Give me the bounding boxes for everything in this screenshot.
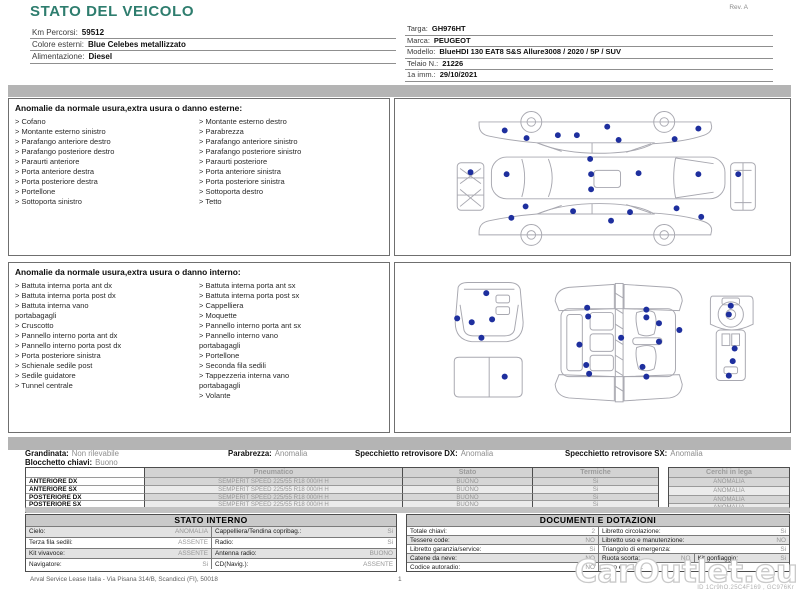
field-label: Colore esterni: xyxy=(32,39,84,50)
cell-value: NO xyxy=(585,537,595,544)
cell-label: Cielo: xyxy=(29,528,45,535)
damage-marker xyxy=(695,171,701,177)
internal-anomaly-column-2: > Battuta interna porta ant sx> Battuta … xyxy=(199,281,383,401)
anomaly-item: > Seconda fila sedili xyxy=(199,361,383,371)
damage-marker xyxy=(608,218,614,224)
field-label: Km Percorsi: xyxy=(32,27,78,38)
anomaly-item: > Schienale sedile post xyxy=(15,361,199,371)
field-value: Blue Celebes metallizzato xyxy=(88,39,186,50)
header-field-row: Telaio N.:21226 xyxy=(405,59,773,71)
anomaly-item: > Tappezzeria interna vano portabagagli xyxy=(199,371,383,391)
anomaly-label: Volante xyxy=(205,391,230,400)
internal-anomaly-title: Anomalie da normale usura,extra usura o … xyxy=(15,267,383,277)
table-cell: CD(Navig.):ASSENTE xyxy=(211,559,396,569)
damage-marker xyxy=(508,215,514,221)
anomaly-item: > Portellone xyxy=(15,187,199,197)
cell-value: Si xyxy=(589,546,595,553)
field-label: Targa: xyxy=(407,24,428,35)
anomaly-item: > Montante esterno sinistro xyxy=(15,127,199,137)
anomaly-label: Moquette xyxy=(205,311,236,320)
anomaly-label: Pannello interno porta post dx xyxy=(21,341,121,350)
table-cell: Kit vivavoce:ASSENTE xyxy=(26,549,211,559)
anomaly-label: Sedile guidatore xyxy=(21,371,75,380)
anomaly-item: > Tetto xyxy=(199,197,383,207)
cell-value: ASSENTE xyxy=(363,561,393,568)
table-cell: Libretto garanzia/service:Si xyxy=(407,545,598,553)
damage-marker xyxy=(671,136,677,142)
summary-item: Blocchetto chiavi:Buono xyxy=(25,459,118,468)
damage-marker xyxy=(695,126,701,132)
anomaly-label: Porta posteriore sinistra xyxy=(21,351,100,360)
damage-marker xyxy=(588,186,594,192)
section-external-anomalies: Anomalie da normale usura,extra usura o … xyxy=(8,98,791,256)
damage-marker xyxy=(554,132,560,138)
damage-marker xyxy=(478,335,484,341)
damage-marker xyxy=(676,327,682,333)
anomaly-label: Montante esterno sinistro xyxy=(21,127,105,136)
table-cell: Codice autoradio:NO xyxy=(407,563,598,571)
cell-label: Antenna radio: xyxy=(215,550,257,557)
table-cell: Tessere code:NO xyxy=(407,536,598,544)
anomaly-label: Pannello interno vano portabagagli xyxy=(199,331,278,350)
anomaly-item: > Parafango posteriore destro xyxy=(15,147,199,157)
anomaly-item: > Tunnel centrale xyxy=(15,381,199,391)
table-cell: Catene da neve:NO xyxy=(407,554,598,562)
anomaly-item: > Parafango anteriore sinistro xyxy=(199,137,383,147)
anomaly-label: Porta posteriore destra xyxy=(21,177,97,186)
cell-label: Kit vivavoce: xyxy=(29,550,65,557)
anomaly-label: Battuta interna porta ant dx xyxy=(21,281,111,290)
header-field-row: Colore esterni:Blue Celebes metallizzato xyxy=(30,39,396,51)
anomaly-label: Battuta interna porta post sx xyxy=(205,291,299,300)
cell-label: Libretto uso e manutenzione: xyxy=(602,537,684,544)
cell-value: Si xyxy=(780,528,786,535)
cell-value: ASSENTE xyxy=(178,550,208,557)
anomaly-label: Portellone xyxy=(21,187,55,196)
anomaly-item: > Sedile guidatore xyxy=(15,371,199,381)
header-field-row: Targa:GH976HT xyxy=(405,24,773,36)
damage-marker xyxy=(627,209,633,215)
tyre-condition: BUONO xyxy=(402,493,532,501)
damage-marker xyxy=(583,362,589,368)
external-anomaly-title: Anomalie da normale usura,extra usura o … xyxy=(15,103,383,113)
damage-marker xyxy=(618,335,624,341)
anomaly-item: > Battuta interna vano portabagagli xyxy=(15,301,199,321)
tyre-description: SEMPERIT SPEED 225/55 R18 000/H H xyxy=(144,493,402,501)
anomaly-item: > Porta posteriore sinistra xyxy=(15,351,199,361)
tyre-winter: Si xyxy=(532,477,658,485)
anomaly-label: Porta anteriore sinistra xyxy=(205,167,280,176)
summary-label: Specchietto retrovisore SX: xyxy=(565,449,667,458)
car-exterior-diagram xyxy=(399,102,787,252)
tyre-table-header: Pneumatico Stato Termiche xyxy=(26,468,658,477)
anomaly-item: > Battuta interna porta ant dx xyxy=(15,281,199,291)
tyre-header-blank xyxy=(26,468,144,477)
documenti-title: DOCUMENTI E DOTAZIONI xyxy=(407,515,789,526)
anomaly-item: > Sottoporta sinistro xyxy=(15,197,199,207)
anomaly-item: > Moquette xyxy=(199,311,383,321)
summary-label: Specchietto retrovisore DX: xyxy=(355,449,458,458)
anomaly-label: Pannello interno porta ant sx xyxy=(205,321,300,330)
anomaly-label: Parafango posteriore destro xyxy=(21,147,114,156)
car-interior-diagram xyxy=(399,266,787,429)
damage-marker xyxy=(604,124,610,130)
damage-marker xyxy=(643,374,649,380)
table-cell: Libretto circolazione:Si xyxy=(598,527,789,535)
tyre-row: ANTERIORE SXSEMPERIT SPEED 225/55 R18 00… xyxy=(26,485,658,493)
damage-marker xyxy=(454,315,460,321)
table-cell: Totale chiavi:2 xyxy=(407,527,598,535)
table-cell: Libretto uso e manutenzione:NO xyxy=(598,536,789,544)
damage-marker xyxy=(735,171,741,177)
anomaly-item: > Cappelliera xyxy=(199,301,383,311)
summary-line-1: Grandinata:Non rilevabileParabrezza:Anom… xyxy=(25,450,790,459)
field-label: Marca: xyxy=(407,36,430,47)
anomaly-item: > Paraurti anteriore xyxy=(15,157,199,167)
interior-damage-markers xyxy=(454,290,738,379)
anomaly-label: Parafango posteriore sinistro xyxy=(205,147,301,156)
summary-line-2: Blocchetto chiavi:Buono xyxy=(25,459,790,468)
alloy-wheel-condition: ANOMALIA xyxy=(669,486,789,495)
header-fields-right: Targa:GH976HTMarca:PEUGEOTModello:BlueHD… xyxy=(405,24,773,82)
anomaly-item: > Porta posteriore destra xyxy=(15,177,199,187)
damage-marker xyxy=(673,205,679,211)
table-row: Kit vivavoce:ASSENTEAntenna radio:BUONO xyxy=(26,548,396,559)
anomaly-item: > Pannello interno vano portabagagli xyxy=(199,331,383,351)
table-row: Cielo:ANOMALIACappelliera/Tendina coprib… xyxy=(26,526,396,537)
cell-value: 2 xyxy=(591,528,595,535)
cell-label: Triangolo di emergenza: xyxy=(602,546,671,553)
table-row: Terza fila sedili:ASSENTERadio:Si xyxy=(26,537,396,548)
tyre-position: POSTERIORE DX xyxy=(26,493,144,501)
cell-value: Si xyxy=(202,561,208,568)
field-label: Alimentazione: xyxy=(32,51,84,62)
field-value: 29/10/2021 xyxy=(440,70,478,81)
cell-label: Totale chiavi: xyxy=(410,528,447,535)
anomaly-item: > Battuta interna porta ant sx xyxy=(199,281,383,291)
stato-interno-table: STATO INTERNO Cielo:ANOMALIACappelliera/… xyxy=(25,514,397,572)
anomaly-item: > Battuta interna porta post dx xyxy=(15,291,199,301)
anomaly-label: Parafango anteriore destro xyxy=(21,137,110,146)
damage-marker xyxy=(467,169,473,175)
cell-label: Radio: xyxy=(215,539,233,546)
field-value: 21226 xyxy=(442,59,463,70)
damage-marker xyxy=(725,312,731,318)
anomaly-label: Battuta interna porta ant sx xyxy=(205,281,295,290)
anomaly-label: Battuta interna vano portabagagli xyxy=(15,301,89,320)
field-label: 1a imm.: xyxy=(407,70,436,81)
exterior-damage-markers xyxy=(467,124,741,224)
anomaly-label: Cappelliera xyxy=(205,301,243,310)
cell-label: Navigatore: xyxy=(29,561,62,568)
damage-marker xyxy=(643,307,649,313)
header-field-row: Km Percorsi:59512 xyxy=(30,27,396,39)
damage-marker xyxy=(635,170,641,176)
anomaly-item: > Porta anteriore sinistra xyxy=(199,167,383,177)
damage-marker xyxy=(698,214,704,220)
tyre-header-termiche: Termiche xyxy=(532,468,658,477)
damage-marker xyxy=(503,171,509,177)
tyre-position: ANTERIORE SX xyxy=(26,485,144,493)
table-row: Totale chiavi:2Libretto circolazione:Si xyxy=(407,526,789,535)
anomaly-label: Montante esterno destro xyxy=(205,117,286,126)
table-cell: Terza fila sedili:ASSENTE xyxy=(26,538,211,548)
damage-marker xyxy=(468,319,474,325)
anomaly-item: > Parabrezza xyxy=(199,127,383,137)
anomaly-item: > Porta anteriore destra xyxy=(15,167,199,177)
anomaly-label: Schienale sedile post xyxy=(21,361,92,370)
damage-marker xyxy=(655,320,661,326)
footer-page-number: 1 xyxy=(398,576,402,583)
interior-diagram-panel xyxy=(394,262,791,433)
cell-value: Si xyxy=(387,528,393,535)
external-anomaly-column-1: > Cofano> Montante esterno sinistro> Par… xyxy=(15,117,199,207)
summary-item: Parabrezza:Anomalia xyxy=(228,450,355,459)
damage-marker xyxy=(584,305,590,311)
field-label: Modello: xyxy=(407,47,435,58)
exterior-diagram-panel xyxy=(394,98,791,256)
page-title: STATO DEL VEICOLO xyxy=(30,3,194,20)
cell-value: ANOMALIA xyxy=(175,528,208,535)
anomaly-item: > Portellone xyxy=(199,351,383,361)
header-field-row: 1a imm.:29/10/2021 xyxy=(405,70,773,82)
alloy-wheel-condition: ANOMALIA xyxy=(669,495,789,504)
anomaly-label: Cruscotto xyxy=(21,321,53,330)
anomaly-item: > Parafango anteriore destro xyxy=(15,137,199,147)
damage-marker xyxy=(523,135,529,141)
internal-anomaly-list: Anomalie da normale usura,extra usura o … xyxy=(8,262,390,433)
summary-label: Grandinata: xyxy=(25,449,69,458)
anomaly-label: Tetto xyxy=(205,197,221,206)
damage-marker xyxy=(489,316,495,322)
anomaly-label: Sottoporta destro xyxy=(205,187,263,196)
footer-company: Arval Service Lease Italia - Via Pisana … xyxy=(30,576,218,583)
table-cell: Radio:Si xyxy=(211,538,396,548)
summary-value: Anomalia xyxy=(275,449,308,458)
cell-label: Terza fila sedili: xyxy=(29,539,73,546)
anomaly-item: > Cruscotto xyxy=(15,321,199,331)
anomaly-label: Porta posteriore sinistra xyxy=(205,177,284,186)
anomaly-label: Portellone xyxy=(205,351,239,360)
damage-marker xyxy=(483,290,489,296)
anomaly-label: Cofano xyxy=(21,117,45,126)
anomaly-item: > Parafango posteriore sinistro xyxy=(199,147,383,157)
anomaly-item: > Battuta interna porta post sx xyxy=(199,291,383,301)
damage-marker xyxy=(522,203,528,209)
anomaly-label: Parafango anteriore sinistro xyxy=(205,137,297,146)
anomaly-label: Tappezzeria interna vano portabagagli xyxy=(199,371,289,390)
tyre-description: SEMPERIT SPEED 225/55 R18 000/H H xyxy=(144,485,402,493)
summary-label: Blocchetto chiavi: xyxy=(25,458,92,467)
damage-marker xyxy=(655,339,661,345)
cell-value: Si xyxy=(387,539,393,546)
table-cell: Navigatore:Si xyxy=(26,559,211,569)
cell-label: Codice autoradio: xyxy=(410,564,460,571)
field-value: 59512 xyxy=(82,27,104,38)
anomaly-label: Parabrezza xyxy=(205,127,243,136)
summary-value: Buono xyxy=(95,458,118,467)
stato-interno-title: STATO INTERNO xyxy=(26,515,396,526)
anomaly-item: > Pannello interno porta post dx xyxy=(15,341,199,351)
external-anomaly-list: Anomalie da normale usura,extra usura o … xyxy=(8,98,390,256)
damage-marker xyxy=(615,137,621,143)
damage-marker xyxy=(731,345,737,351)
header-field-row: Marca:PEUGEOT xyxy=(405,36,773,48)
tyre-condition: BUONO xyxy=(402,485,532,493)
damage-marker xyxy=(570,208,576,214)
damage-marker xyxy=(576,342,582,348)
cell-value: BUONO xyxy=(370,550,393,557)
cell-label: CD(Navig.): xyxy=(215,561,248,568)
revision-label: Rev. A xyxy=(729,4,748,11)
alloy-wheel-condition: ANOMALIA xyxy=(669,477,789,486)
external-anomaly-column-2: > Montante esterno destro> Parabrezza> P… xyxy=(199,117,383,207)
damage-marker xyxy=(587,156,593,162)
summary-item: Specchietto retrovisore DX:Anomalia xyxy=(355,450,565,459)
section-internal-anomalies: Anomalie da normale usura,extra usura o … xyxy=(8,262,791,433)
damage-marker xyxy=(725,373,731,379)
table-cell: Cielo:ANOMALIA xyxy=(26,527,211,537)
anomaly-label: Pannello interno porta ant dx xyxy=(21,331,117,340)
anomaly-item: > Montante esterno destro xyxy=(199,117,383,127)
anomaly-item: > Pannello interno porta ant sx xyxy=(199,321,383,331)
cell-value: ASSENTE xyxy=(178,539,208,546)
anomaly-item: > Pannello interno porta ant dx xyxy=(15,331,199,341)
vehicle-report-page: STATO DEL VEICOLO Rev. A Km Percorsi:595… xyxy=(0,0,800,600)
anomaly-label: Battuta interna porta post dx xyxy=(21,291,115,300)
damage-marker xyxy=(639,364,645,370)
table-cell: Triangolo di emergenza:Si xyxy=(598,545,789,553)
field-label: Telaio N.: xyxy=(407,59,438,70)
field-value: PEUGEOT xyxy=(434,36,471,47)
damage-marker xyxy=(729,358,735,364)
tyre-header-cerchi: Cerchi in lega xyxy=(669,468,789,477)
table-row: Libretto garanzia/service:SiTriangolo di… xyxy=(407,544,789,553)
tyre-condition: BUONO xyxy=(402,477,532,485)
field-value: GH976HT xyxy=(432,24,466,35)
anomaly-label: Sottoporta sinistro xyxy=(21,197,81,206)
tyre-row: ANTERIORE DXSEMPERIT SPEED 225/55 R18 00… xyxy=(26,477,658,485)
damage-marker xyxy=(573,132,579,138)
anomaly-label: Tunnel centrale xyxy=(21,381,72,390)
anomaly-item: > Paraurti posteriore xyxy=(199,157,383,167)
tyre-winter: Si xyxy=(532,485,658,493)
cell-value: NO xyxy=(776,537,786,544)
anomaly-item: > Cofano xyxy=(15,117,199,127)
field-value: BlueHDI 130 EAT8 S&S Allure3008 / 2020 /… xyxy=(439,47,621,58)
tyre-winter: Si xyxy=(532,493,658,501)
table-cell: Antenna radio:BUONO xyxy=(211,549,396,559)
cell-label: Libretto garanzia/service: xyxy=(410,546,481,553)
anomaly-label: Paraurti anteriore xyxy=(21,157,79,166)
tyre-header-pneumatico: Pneumatico xyxy=(144,468,402,477)
anomaly-label: Paraurti posteriore xyxy=(205,157,267,166)
separator-bar xyxy=(8,85,791,97)
cell-label: Libretto circolazione: xyxy=(602,528,661,535)
summary-label: Parabrezza: xyxy=(228,449,272,458)
header-fields-left: Km Percorsi:59512Colore esterni:Blue Cel… xyxy=(30,27,396,64)
tyre-position: ANTERIORE DX xyxy=(26,477,144,485)
anomaly-label: Seconda fila sedili xyxy=(205,361,265,370)
damage-marker xyxy=(585,313,591,319)
summary-value: Anomalia xyxy=(670,449,703,458)
header-field-row: Alimentazione:Diesel xyxy=(30,51,396,63)
separator-bar xyxy=(25,507,790,513)
watermark-id: ID 1Cr9hO.25C4F169 , GC976Kr xyxy=(697,585,794,591)
cell-value: Si xyxy=(780,546,786,553)
anomaly-item: > Porta posteriore sinistra xyxy=(199,177,383,187)
tyre-description: SEMPERIT SPEED 225/55 R18 000/H H xyxy=(144,477,402,485)
anomaly-item: > Sottoporta destro xyxy=(199,187,383,197)
anomaly-label: Porta anteriore destra xyxy=(21,167,94,176)
damage-marker xyxy=(727,303,733,309)
tyre-header-stato: Stato xyxy=(402,468,532,477)
cell-label: Cappelliera/Tendina copribag.: xyxy=(215,528,301,535)
internal-anomaly-column-1: > Battuta interna porta ant dx> Battuta … xyxy=(15,281,199,401)
condition-summary: Grandinata:Non rilevabileParabrezza:Anom… xyxy=(25,450,790,467)
summary-value: Anomalia xyxy=(461,449,494,458)
summary-item: Specchietto retrovisore SX:Anomalia xyxy=(565,450,790,459)
cell-label: Tessere code: xyxy=(410,537,450,544)
table-cell: Cappelliera/Tendina copribag.:Si xyxy=(211,527,396,537)
damage-marker xyxy=(501,374,507,380)
header-field-row: Modello:BlueHDI 130 EAT8 S&S Allure3008 … xyxy=(405,47,773,59)
damage-marker xyxy=(643,314,649,320)
tyre-row: POSTERIORE DXSEMPERIT SPEED 225/55 R18 0… xyxy=(26,493,658,501)
table-row: Tessere code:NOLibretto uso e manutenzio… xyxy=(407,535,789,544)
anomaly-item: > Volante xyxy=(199,391,383,401)
damage-marker xyxy=(586,371,592,377)
field-value: Diesel xyxy=(88,51,112,62)
cell-label: Catene da neve: xyxy=(410,555,457,562)
table-row: Navigatore:SiCD(Navig.):ASSENTE xyxy=(26,558,396,569)
damage-marker xyxy=(588,171,594,177)
damage-marker xyxy=(501,128,507,134)
